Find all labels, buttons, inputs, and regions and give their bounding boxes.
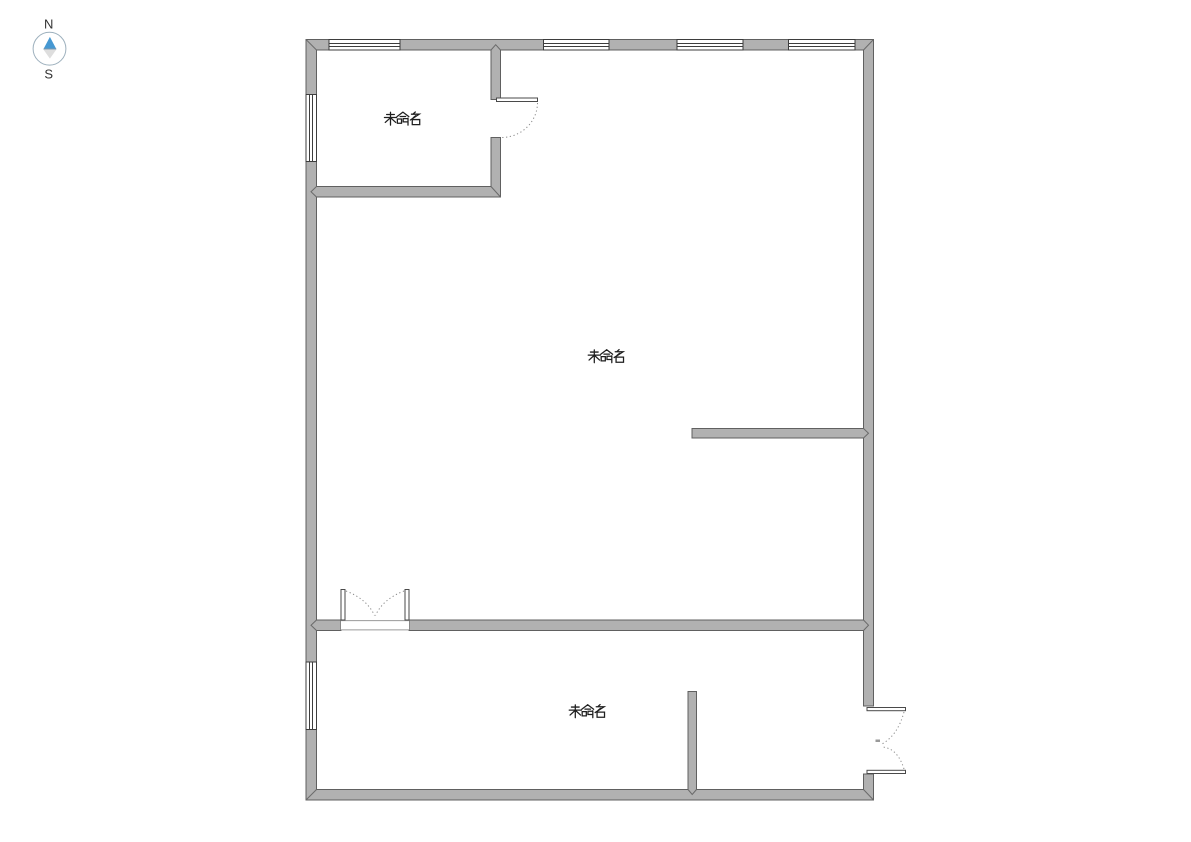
svg-text:N: N xyxy=(44,17,53,32)
svg-text:S: S xyxy=(44,66,53,81)
